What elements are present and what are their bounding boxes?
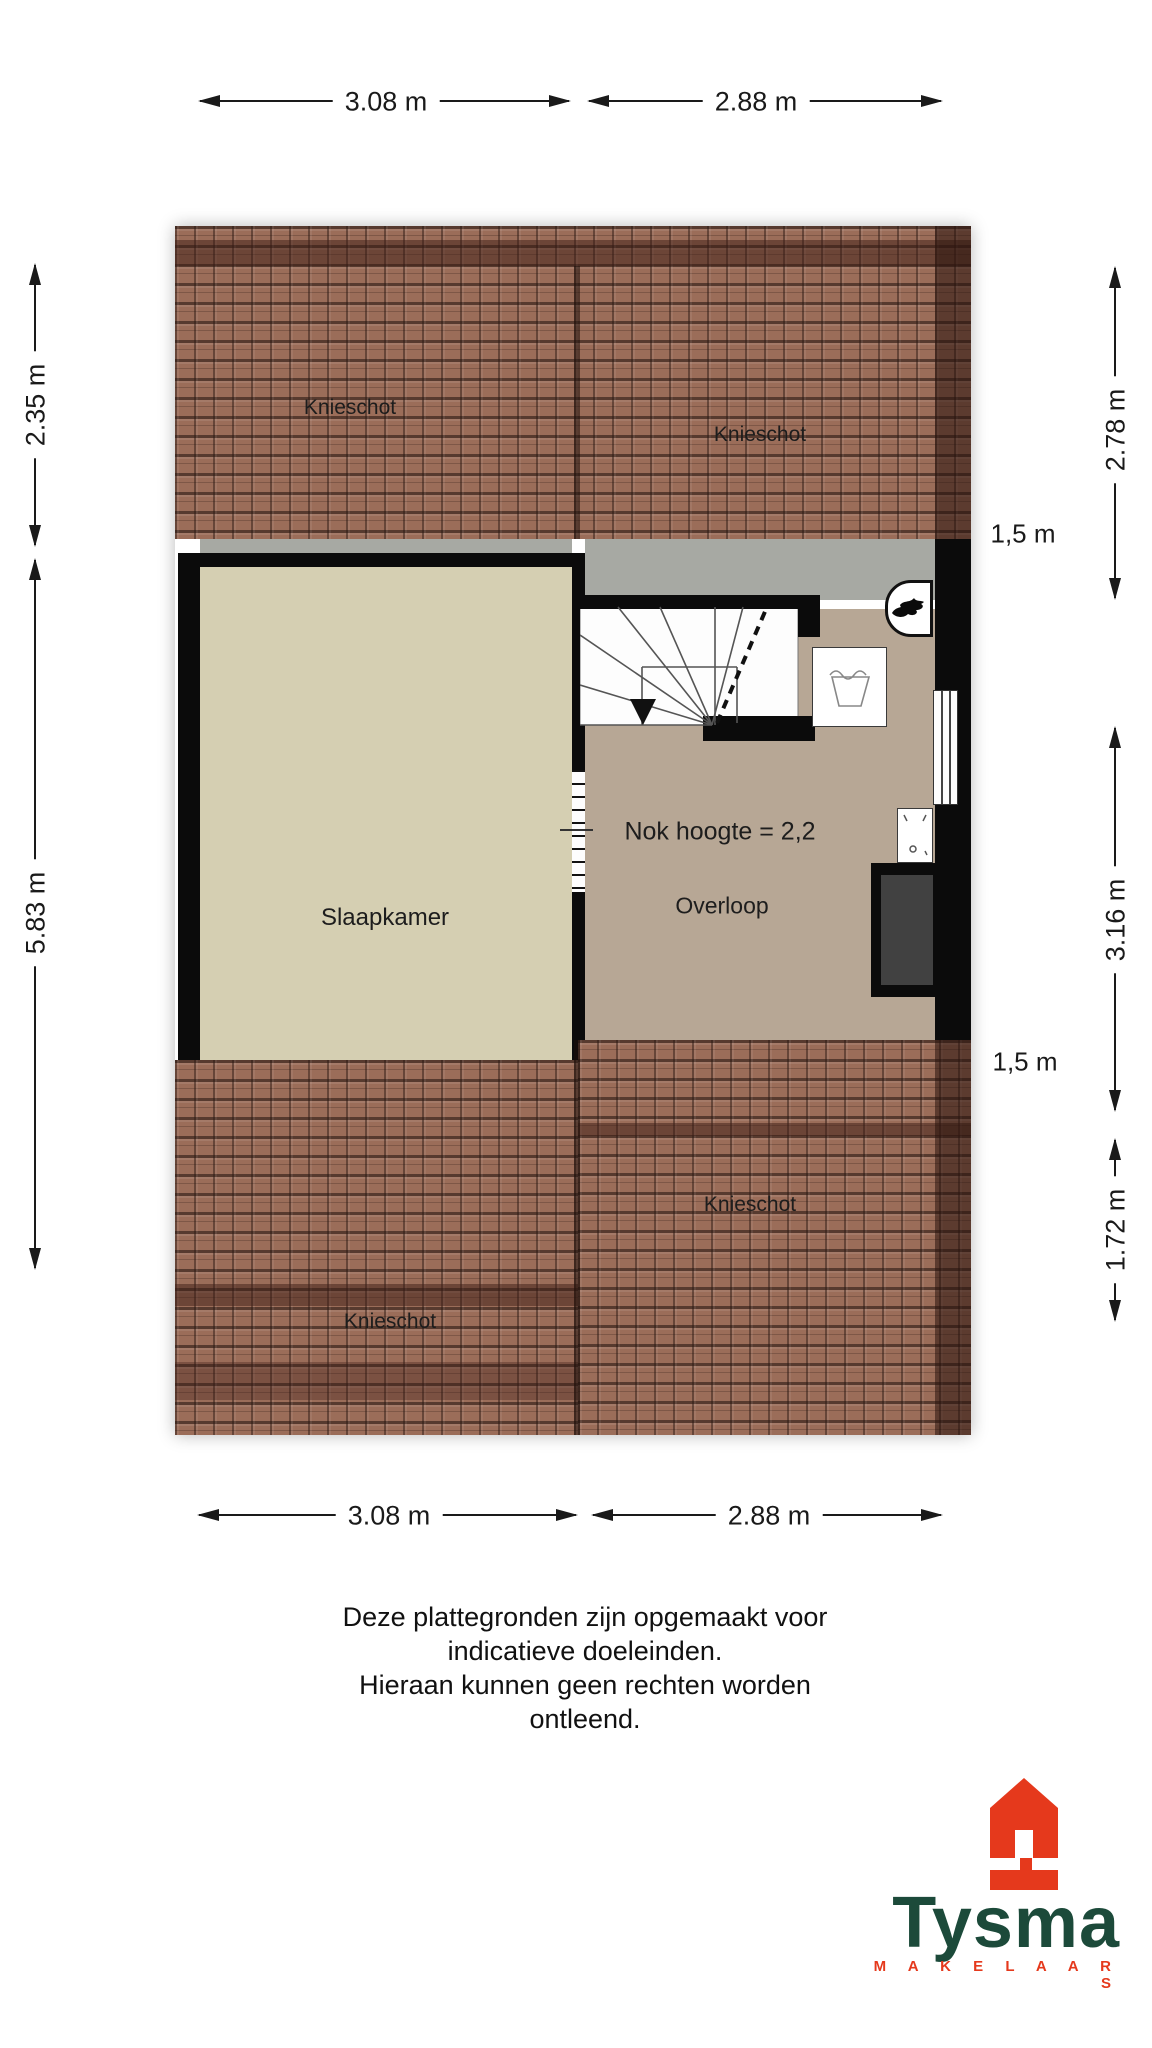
dim-top-left-arrow: 3.08 m bbox=[200, 100, 569, 102]
utility-box bbox=[897, 808, 933, 863]
roof-knee-band bbox=[578, 1123, 971, 1136]
arrowhead-icon bbox=[29, 263, 41, 285]
knee-height-note-top: 1,5 m bbox=[990, 519, 1055, 550]
disclaimer-line2: Hieraan kunnen geen rechten worden ontle… bbox=[302, 1668, 869, 1736]
roof-edge-shadow bbox=[935, 226, 971, 539]
dim-right-upper-arrow: 2.78 m bbox=[1114, 268, 1116, 598]
window-pane-line bbox=[949, 691, 951, 804]
arrowhead-icon bbox=[549, 95, 571, 107]
dim-top-right-arrow: 2.88 m bbox=[589, 100, 941, 102]
door-opening bbox=[572, 770, 585, 892]
arrowhead-icon bbox=[921, 95, 943, 107]
dim-top-right-label: 2.88 m bbox=[703, 85, 810, 120]
logo-tagline: M A K E L A A R S bbox=[845, 1958, 1120, 1992]
knee-height-note-bottom: 1,5 m bbox=[992, 1047, 1057, 1078]
roof-top bbox=[175, 226, 971, 539]
arrowhead-icon bbox=[1109, 1138, 1121, 1160]
dim-right-middle-arrow: 3.16 m bbox=[1114, 728, 1116, 1110]
door-tick bbox=[560, 829, 593, 831]
roof-knee-band bbox=[175, 1284, 578, 1306]
dim-bottom-left-label: 3.08 m bbox=[336, 1499, 443, 1534]
arrowhead-icon bbox=[29, 558, 41, 580]
roof-seam bbox=[574, 266, 580, 539]
washbasin-icon bbox=[813, 648, 888, 728]
arrowhead-icon bbox=[197, 1509, 219, 1521]
logo-name: Tysma bbox=[845, 1890, 1120, 1956]
dim-right-lower-arrow: 1.72 m bbox=[1114, 1140, 1116, 1320]
arrowhead-icon bbox=[587, 95, 609, 107]
room-label-nok-hoogte: Nok hoogte = 2,2 bbox=[624, 818, 815, 847]
arrowhead-icon bbox=[591, 1509, 613, 1521]
arrowhead-icon bbox=[1109, 726, 1121, 748]
room-label-knieschot-top-left: Knieschot bbox=[304, 396, 396, 420]
arrowhead-icon bbox=[198, 95, 220, 107]
room-label-knieschot-bottom-left: Knieschot bbox=[344, 1310, 436, 1334]
dim-right-lower-label: 1.72 m bbox=[1099, 1177, 1134, 1284]
room-label-knieschot-bottom-right: Knieschot bbox=[704, 1193, 796, 1217]
floorplan-page: Knieschot Knieschot Slaapkamer Nok hoogt… bbox=[0, 0, 1152, 2048]
roof-eaves-band bbox=[175, 1362, 578, 1400]
arrowhead-icon bbox=[921, 1509, 943, 1521]
stairs-icon bbox=[580, 595, 820, 741]
room-label-knieschot-top-right: Knieschot bbox=[714, 423, 806, 447]
disclaimer-line1: Deze plattegronden zijn opgemaakt voor i… bbox=[302, 1600, 869, 1668]
shaft-box bbox=[881, 875, 933, 985]
arrowhead-icon bbox=[29, 525, 41, 547]
dim-bottom-right-arrow: 2.88 m bbox=[593, 1514, 941, 1516]
room-label-overloop: Overloop bbox=[675, 893, 768, 920]
boiler bbox=[885, 580, 933, 637]
window-pane-line bbox=[941, 691, 943, 804]
roof-bottom-right bbox=[578, 1040, 971, 1435]
dim-bottom-right-label: 2.88 m bbox=[716, 1499, 823, 1534]
arrowhead-icon bbox=[1109, 266, 1121, 288]
room-label-slaapkamer: Slaapkamer bbox=[321, 904, 449, 932]
dim-left-lower-arrow: 5.83 m bbox=[34, 560, 36, 1268]
bedroom-top-wall bbox=[178, 553, 585, 567]
brand-logo: Tysma M A K E L A A R S bbox=[845, 1778, 1120, 1992]
dim-right-middle-label: 3.16 m bbox=[1099, 867, 1134, 974]
dim-left-upper-arrow: 2.35 m bbox=[34, 265, 36, 545]
bedroom-floor bbox=[200, 567, 572, 1060]
arrowhead-icon bbox=[29, 1248, 41, 1270]
left-wall bbox=[178, 553, 200, 1060]
dim-bottom-left-arrow: 3.08 m bbox=[199, 1514, 576, 1516]
dim-top-left-label: 3.08 m bbox=[333, 85, 440, 120]
arrowhead-icon bbox=[1109, 1300, 1121, 1322]
roof-ridge-band bbox=[175, 240, 971, 266]
low-headroom-strip-left bbox=[200, 539, 572, 553]
dim-left-lower-label: 5.83 m bbox=[19, 860, 54, 967]
low-headroom-strip-right bbox=[585, 539, 935, 600]
boiler-flame-icon bbox=[888, 583, 930, 634]
roof-seam bbox=[574, 1040, 580, 1435]
house-icon bbox=[990, 1778, 1058, 1890]
washbasin bbox=[812, 647, 887, 727]
arrowhead-icon bbox=[1109, 578, 1121, 600]
disclaimer: Deze plattegronden zijn opgemaakt voor i… bbox=[302, 1600, 869, 1736]
roof-edge-shadow bbox=[935, 1040, 971, 1435]
arrowhead-icon bbox=[556, 1509, 578, 1521]
roof-bottom-left bbox=[175, 1060, 578, 1435]
window bbox=[933, 690, 958, 805]
utility-box-marks-icon bbox=[898, 809, 932, 862]
arrowhead-icon bbox=[1109, 1090, 1121, 1112]
dim-left-upper-label: 2.35 m bbox=[19, 352, 54, 459]
dim-right-upper-label: 2.78 m bbox=[1099, 377, 1134, 484]
floorplan: Knieschot Knieschot Slaapkamer Nok hoogt… bbox=[175, 226, 971, 1435]
